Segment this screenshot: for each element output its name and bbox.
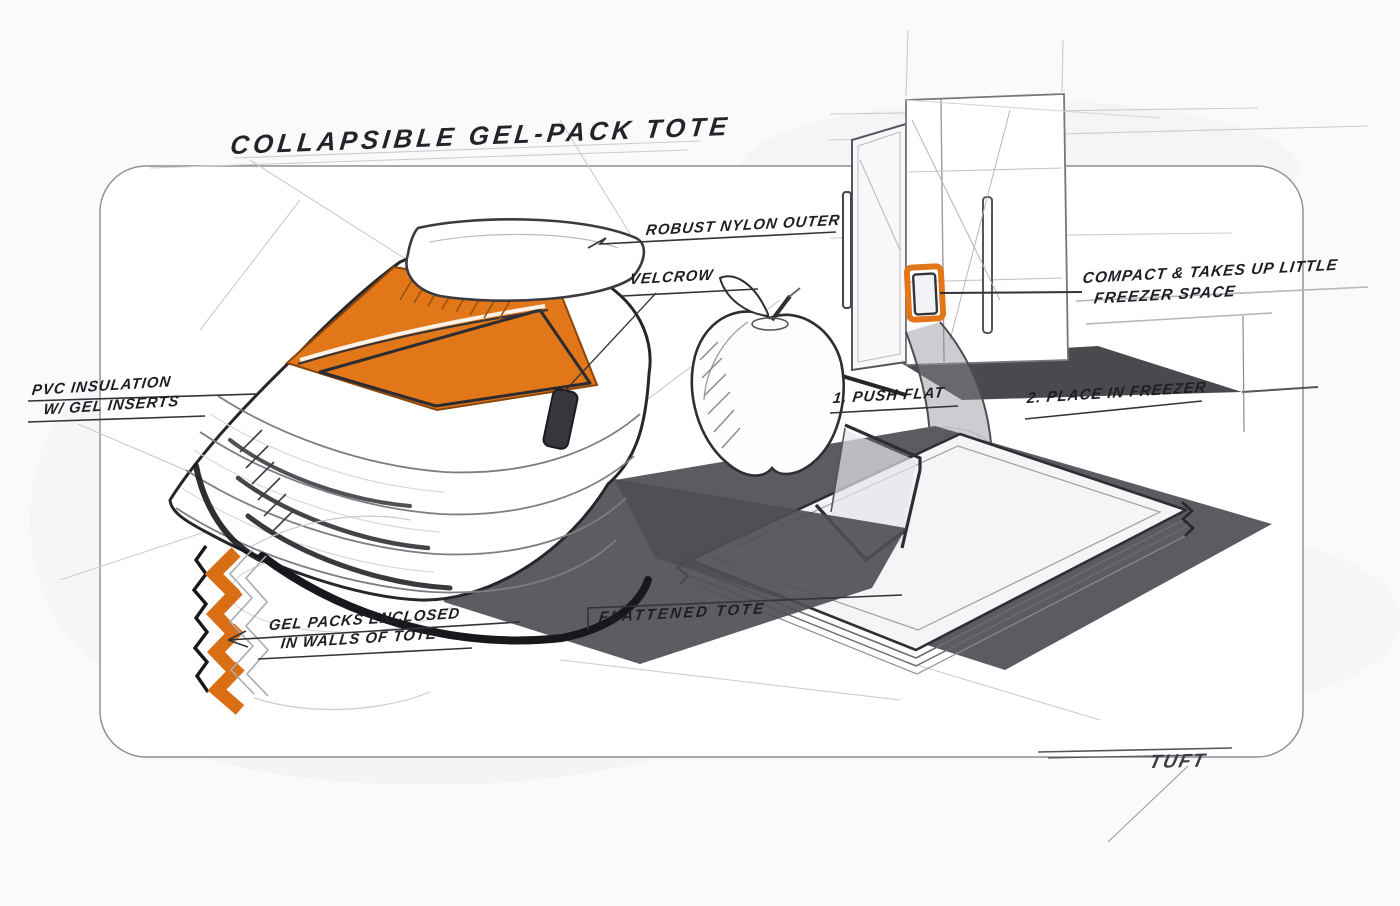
signature: TUFT (1147, 751, 1208, 775)
lid-flap (406, 219, 643, 300)
sketch-canvas: COLLAPSIBLE GEL-PACK TOTE ROBUST NYLON O… (0, 0, 1400, 906)
